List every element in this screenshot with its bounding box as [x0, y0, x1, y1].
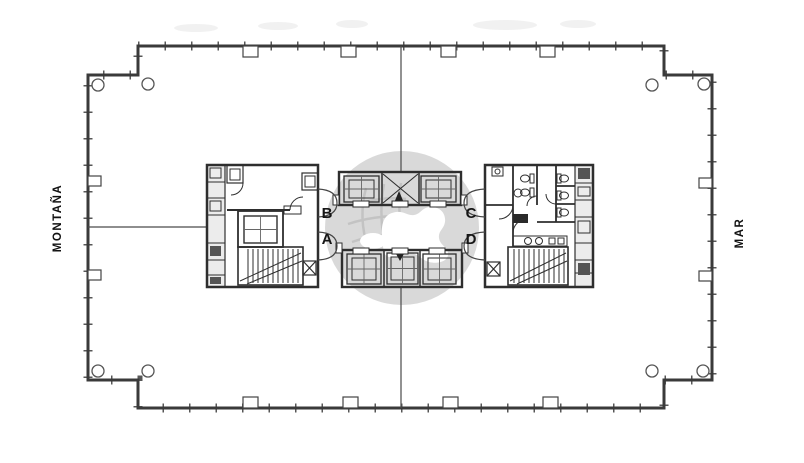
tab-icon	[441, 46, 456, 57]
sink-icon	[492, 167, 522, 197]
left-core	[207, 165, 318, 287]
fixture-icon	[558, 238, 564, 244]
stairs-icon	[508, 247, 568, 285]
column-icon	[92, 365, 104, 377]
wall-fill-block	[513, 214, 528, 223]
tab-icon	[443, 397, 458, 408]
scan-smudges	[174, 20, 596, 32]
floor-plan-page: B A C D MONTAÑA MAR	[0, 0, 804, 463]
tab-icon	[243, 397, 258, 408]
counter-basins	[513, 236, 567, 246]
basin-icon	[525, 238, 532, 245]
unit-label-b: B	[322, 205, 333, 222]
duct-icon	[210, 277, 221, 284]
column-icon	[697, 365, 709, 377]
column-icon	[646, 79, 658, 91]
right-core	[485, 165, 593, 287]
tab-icon	[540, 46, 555, 57]
tab-icon	[343, 397, 358, 408]
watermark-emblem-arm	[360, 233, 386, 249]
column-icon	[142, 365, 154, 377]
tab-icon	[341, 46, 356, 57]
duct-icon	[578, 263, 590, 275]
column-icon	[646, 365, 658, 377]
shaft-x-icon	[303, 261, 316, 275]
duct-icon	[210, 246, 221, 256]
toilet-icon	[521, 174, 569, 217]
column-icon	[142, 78, 154, 90]
unit-label-c: C	[466, 205, 477, 222]
tab-icon	[88, 176, 101, 186]
column-icon	[92, 79, 104, 91]
floor-plan-drawing: B A C D MONTAÑA MAR	[0, 0, 804, 463]
orientation-label-mar: MAR	[734, 218, 746, 249]
shaft-x-icon	[487, 262, 500, 276]
stairs-icon	[238, 247, 303, 285]
tab-icon	[699, 178, 712, 188]
tab-icon	[88, 270, 101, 280]
unit-label-d: D	[466, 231, 477, 248]
duct-icon	[578, 168, 590, 179]
tab-icon	[543, 397, 558, 408]
door-arc-icon	[499, 194, 556, 233]
unit-label-a: A	[322, 231, 333, 248]
orientation-label-montana: MONTAÑA	[51, 184, 64, 252]
column-icon	[698, 78, 710, 90]
tab-icon	[243, 46, 258, 57]
basin-icon	[536, 238, 543, 245]
fixture-icon	[549, 238, 555, 244]
tab-icon	[699, 271, 712, 281]
